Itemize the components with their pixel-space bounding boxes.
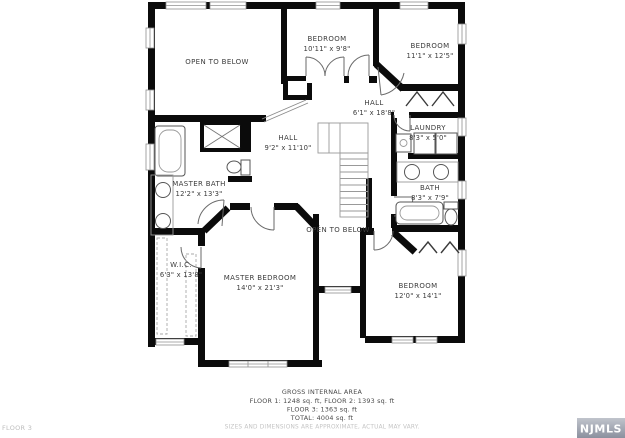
- closet-shelf-icon: [157, 238, 167, 334]
- window: [416, 337, 437, 343]
- door-arc: [306, 57, 325, 76]
- sink-icon: [434, 165, 449, 180]
- room-label-open-to-below-middle: OPEN TO BELOW: [306, 226, 369, 234]
- sink-icon: [156, 214, 171, 229]
- room-label-laundry: LAUNDRY: [410, 124, 446, 132]
- railing: [264, 103, 308, 122]
- room-dims-bath: 8'3" x 7'9": [411, 194, 449, 202]
- window: [146, 90, 154, 110]
- floor-number-tag: FLOOR 3: [2, 424, 32, 432]
- room-dims-wic: 6'3" x 13'8": [160, 271, 202, 279]
- room-label-bath: BATH: [420, 184, 440, 192]
- door-arc: [251, 207, 274, 230]
- room-label-master-bedroom: MASTER BEDROOM: [224, 274, 297, 282]
- room-label-master-bath: MASTER BATH: [172, 180, 226, 188]
- window: [400, 2, 428, 9]
- room-label-bedroom-right: BEDROOM: [411, 42, 450, 50]
- room-dims-hall-center: 9'2" x 11'10": [265, 144, 312, 152]
- sink-icon: [405, 165, 420, 180]
- window: [210, 2, 246, 9]
- closet-rod-icon: [432, 92, 454, 106]
- window: [146, 28, 154, 48]
- window: [458, 118, 466, 136]
- window: [156, 339, 184, 345]
- bathtub-icon: [155, 126, 185, 176]
- railing: [262, 100, 306, 119]
- window: [146, 144, 154, 170]
- sink-icon: [156, 183, 171, 198]
- disclaimer-text: SIZES AND DIMENSIONS ARE APPROXIMATE, AC…: [225, 425, 420, 431]
- shower-icon: [202, 123, 242, 150]
- room-dims-bedroom-bottom: 12'0" x 14'1": [395, 292, 442, 300]
- room-label-bedroom-top: BEDROOM: [308, 35, 347, 43]
- door-arc: [325, 57, 344, 76]
- window: [392, 337, 413, 343]
- window: [458, 181, 466, 199]
- floor1-floor2-area: FLOOR 1: 1248 sq. ft, FLOOR 2: 1393 sq. …: [250, 397, 395, 405]
- closet-rod-icon: [406, 92, 428, 106]
- door-arc: [348, 55, 369, 76]
- floor3-area: FLOOR 3: 1363 sq. ft: [287, 406, 357, 414]
- floor-plan-canvas: OPEN TO BELOW BEDROOM 10'11" x 9'8" BEDR…: [0, 0, 625, 438]
- room-label-hall-center: HALL: [278, 134, 297, 142]
- room-label-open-to-below-top: OPEN TO BELOW: [185, 58, 248, 66]
- window: [458, 250, 466, 276]
- closet-rod-icon: [441, 242, 459, 253]
- njmls-logo-text: NJMLS: [580, 423, 622, 436]
- window: [229, 361, 287, 367]
- room-label-wic: W.I.C.: [170, 261, 192, 269]
- footer-area: GROSS INTERNAL AREA FLOOR 1: 1248 sq. ft…: [225, 388, 420, 431]
- room-label-bedroom-bottom: BEDROOM: [399, 282, 438, 290]
- gross-internal-area-title: GROSS INTERNAL AREA: [282, 388, 363, 396]
- window: [325, 287, 351, 293]
- staircase-icon: [318, 123, 368, 217]
- room-dims-master-bath: 12'2" x 13'3": [176, 190, 223, 198]
- njmls-logo: NJMLS: [577, 418, 625, 438]
- window: [166, 2, 206, 9]
- room-dims-bedroom-top: 10'11" x 9'8": [304, 45, 351, 53]
- toilet-icon: [227, 160, 250, 175]
- bathtub-icon: [396, 202, 443, 224]
- room-label-hall-upper: HALL: [364, 99, 383, 107]
- vanity-icon: [397, 162, 458, 182]
- room-dims-hall-upper: 6'1" x 18'8": [353, 109, 395, 117]
- total-area: TOTAL: 4004 sq. ft: [290, 414, 354, 422]
- room-dims-bedroom-right: 11'1" x 12'5": [407, 52, 454, 60]
- toilet-icon: [444, 202, 458, 225]
- room-dims-laundry: 8'3" x 5'0": [409, 134, 447, 142]
- window: [458, 24, 466, 44]
- room-dims-master-bedroom: 14'0" x 21'3": [237, 284, 284, 292]
- closet-rod-icon: [419, 242, 437, 253]
- window: [316, 2, 340, 9]
